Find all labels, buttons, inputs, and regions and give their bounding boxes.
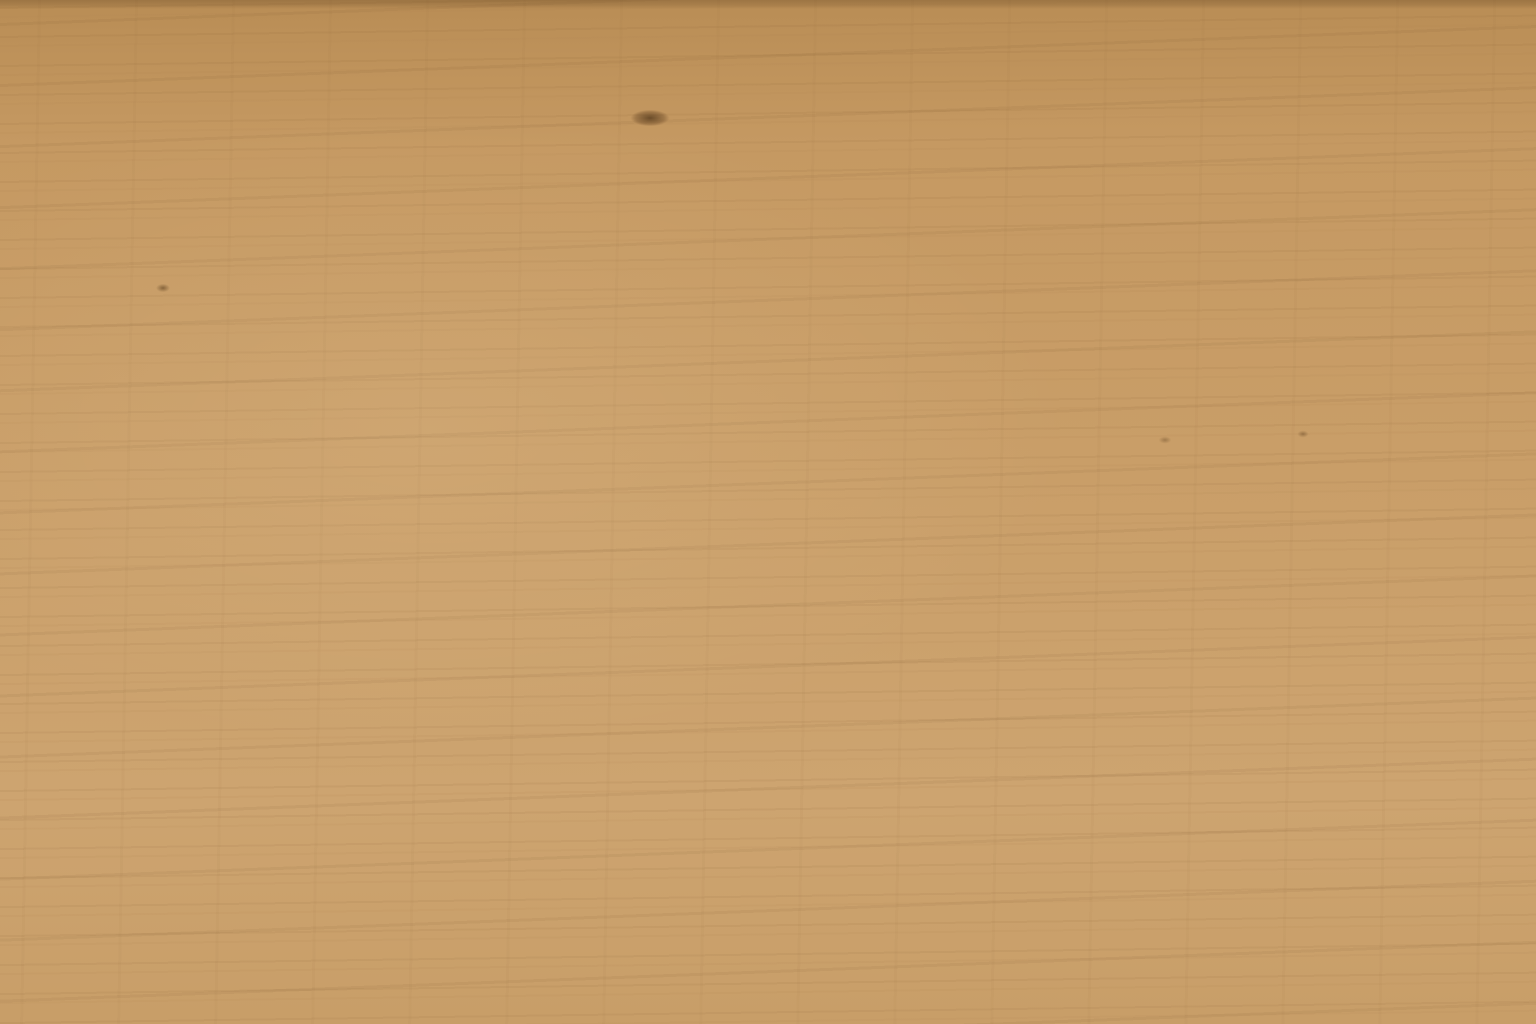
wooden-table-surface xyxy=(0,0,1536,1024)
photo-scene: LAUBSÄGEVORLAGE LAUBSÄGEVORLAGE LAUBSÄGE… xyxy=(0,0,1536,1024)
